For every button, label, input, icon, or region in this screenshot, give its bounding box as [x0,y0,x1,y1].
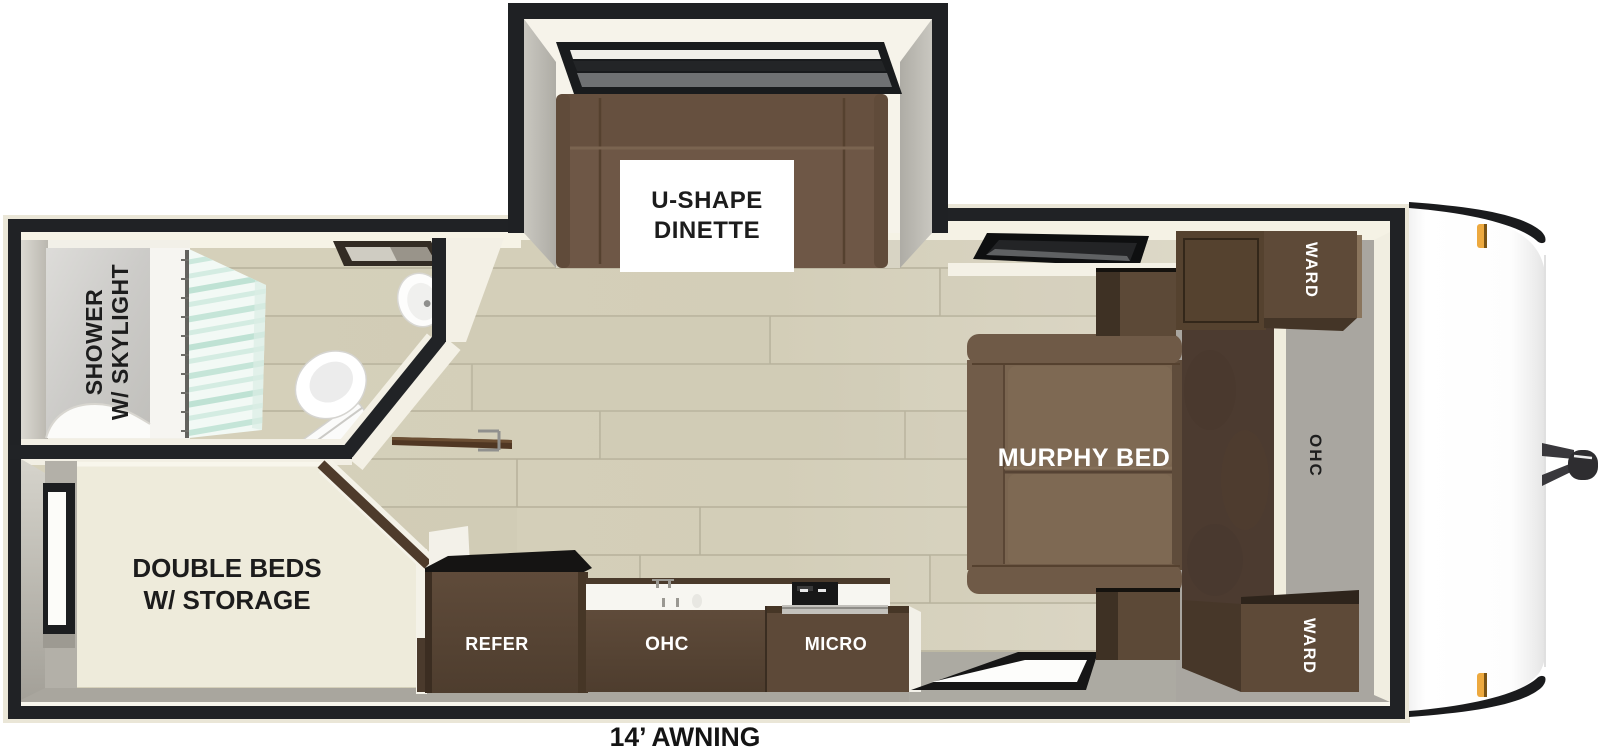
svg-text:WARD: WARD [1302,242,1320,298]
svg-text:14’ AWNING: 14’ AWNING [610,722,761,749]
svg-text:OHC: OHC [645,634,689,655]
svg-text:DOUBLE BEDS: DOUBLE BEDS [132,553,321,583]
svg-text:W/ SKYLIGHT: W/ SKYLIGHT [107,264,133,420]
svg-text:MURPHY BED: MURPHY BED [998,444,1171,472]
svg-text:REFER: REFER [465,634,529,654]
svg-text:WARD: WARD [1300,618,1318,674]
svg-text:OHC: OHC [1306,434,1325,478]
svg-text:MICRO: MICRO [805,634,868,654]
svg-text:W/ STORAGE: W/ STORAGE [143,585,310,615]
svg-text:DINETTE: DINETTE [654,217,760,244]
svg-text:SHOWER: SHOWER [81,289,107,396]
svg-text:U-SHAPE: U-SHAPE [651,187,763,214]
